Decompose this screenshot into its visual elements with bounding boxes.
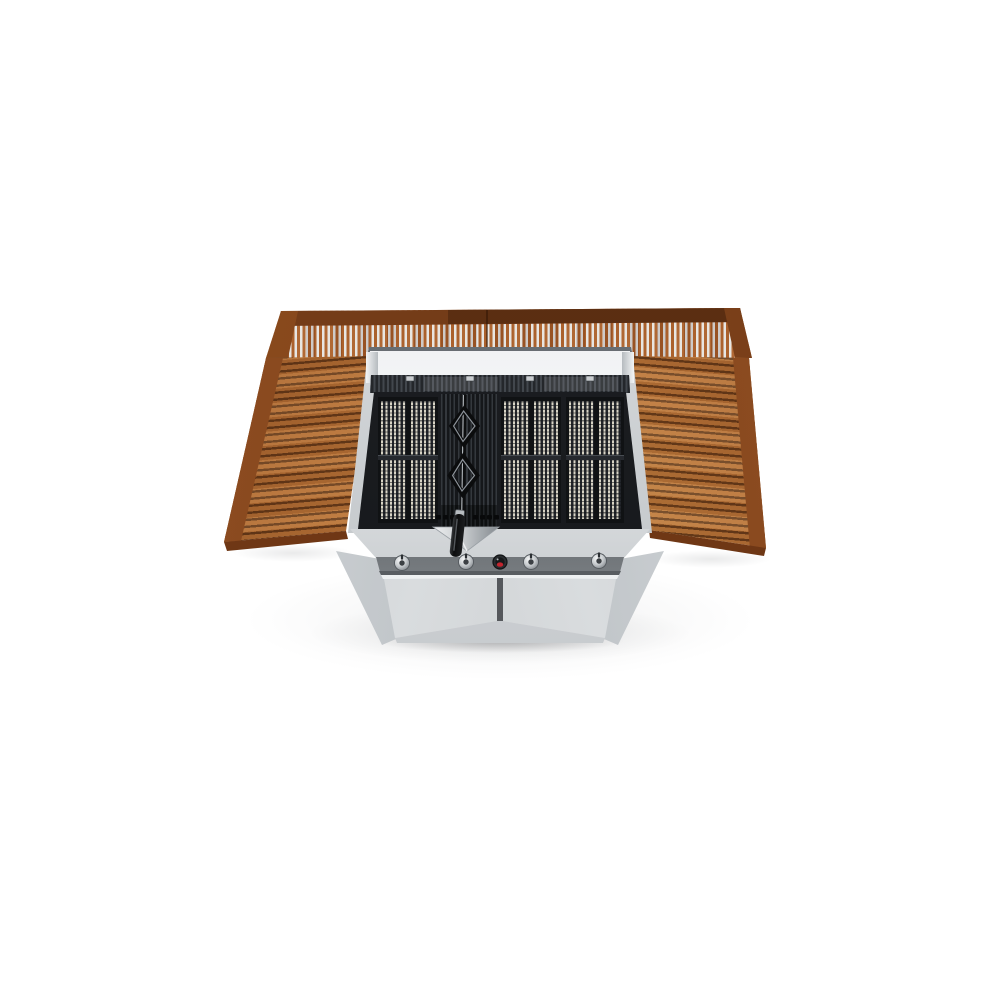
burner-knob-3 xyxy=(524,554,539,570)
detail-overlay xyxy=(0,0,1000,1000)
warming-rack-clips xyxy=(406,376,594,381)
vent-slots xyxy=(436,515,499,520)
drip-tray-bracket xyxy=(433,527,499,551)
igniter-button xyxy=(493,555,507,569)
product-photo xyxy=(0,0,1000,1000)
burner-knob-1 xyxy=(395,555,410,571)
burner-knob-4 xyxy=(592,553,607,569)
burner-knob-2 xyxy=(459,554,474,570)
igniter-light xyxy=(497,562,503,566)
